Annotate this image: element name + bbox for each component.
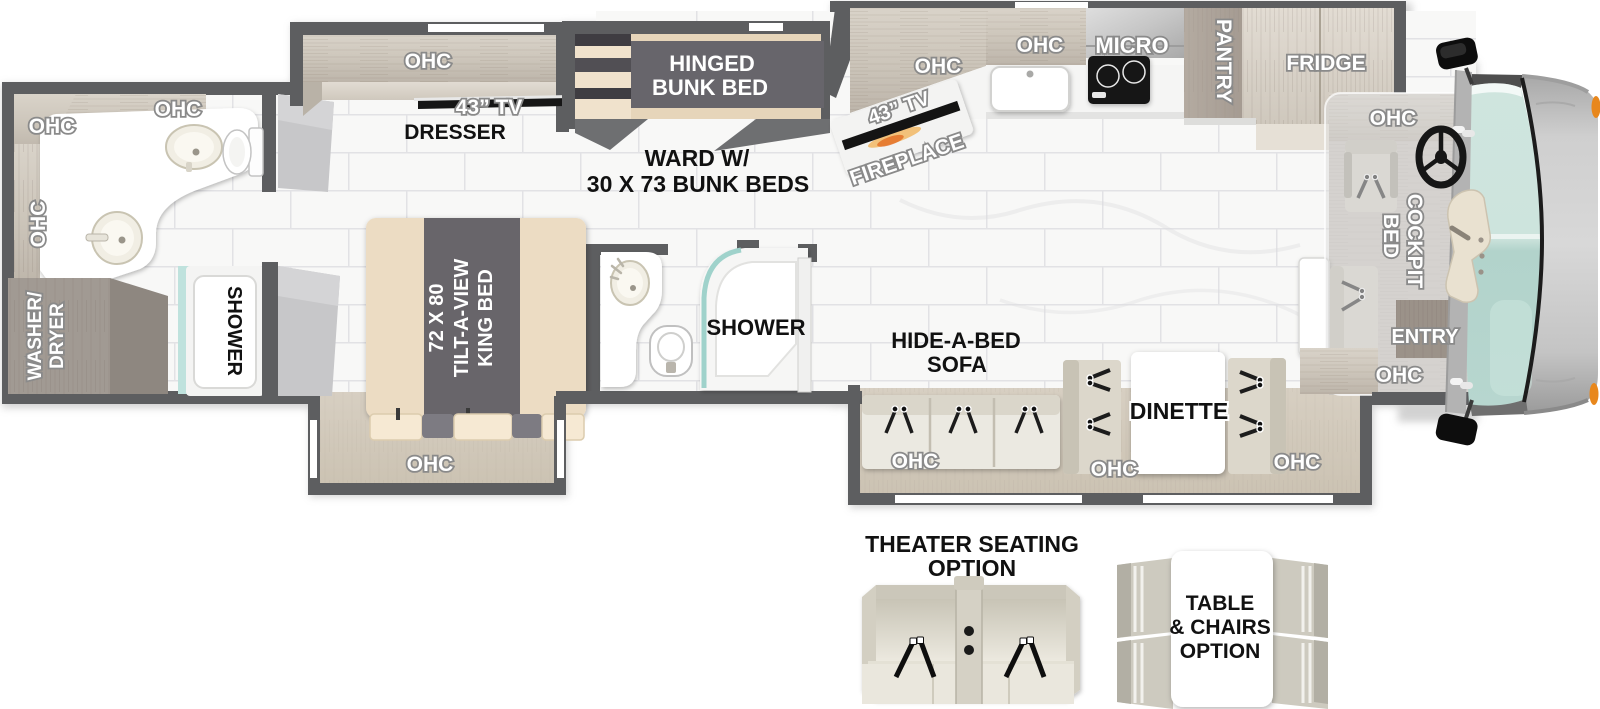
svg-text:72 X 80: 72 X 80 [426, 284, 448, 353]
svg-text:COCKPIT: COCKPIT [1403, 194, 1426, 289]
svg-text:SHOWER: SHOWER [223, 286, 245, 377]
svg-text:FRIDGE: FRIDGE [1286, 52, 1365, 75]
svg-text:ENTRY: ENTRY [1391, 326, 1459, 348]
svg-text:BED: BED [1379, 214, 1402, 258]
svg-text:OHC: OHC [1370, 107, 1417, 130]
svg-text:THEATER SEATING: THEATER SEATING [865, 531, 1079, 557]
svg-text:HIDE-A-BED: HIDE-A-BED [891, 328, 1021, 353]
svg-text:WASHER/: WASHER/ [25, 291, 46, 380]
svg-text:MICRO: MICRO [1095, 33, 1168, 58]
svg-text:OHC: OHC [892, 450, 939, 473]
svg-text:OHC: OHC [1376, 364, 1423, 387]
svg-text:PANTRY: PANTRY [1212, 19, 1235, 103]
svg-text:OHC: OHC [1091, 458, 1138, 481]
svg-text:43” TV: 43” TV [456, 96, 523, 119]
svg-text:TABLE: TABLE [1186, 592, 1254, 615]
svg-text:OPTION: OPTION [928, 555, 1016, 581]
svg-text:& CHAIRS: & CHAIRS [1169, 616, 1271, 639]
svg-text:OHC: OHC [29, 115, 76, 138]
svg-text:30 X 73 BUNK BEDS: 30 X 73 BUNK BEDS [587, 171, 809, 197]
svg-text:DINETTE: DINETTE [1130, 398, 1228, 424]
svg-text:OHC: OHC [27, 201, 50, 248]
svg-text:TILT-A-VIEW: TILT-A-VIEW [451, 259, 473, 378]
svg-text:OPTION: OPTION [1180, 640, 1261, 663]
svg-text:OHC: OHC [155, 98, 202, 121]
svg-text:OHC: OHC [1274, 451, 1321, 474]
svg-text:DRYER: DRYER [47, 303, 68, 369]
svg-text:HINGED: HINGED [669, 51, 755, 76]
svg-text:OHC: OHC [405, 50, 452, 73]
svg-text:DRESSER: DRESSER [404, 121, 506, 144]
svg-text:KING BED: KING BED [475, 269, 497, 367]
svg-text:OHC: OHC [407, 453, 454, 476]
svg-text:OHC: OHC [915, 55, 962, 78]
svg-text:SOFA: SOFA [927, 352, 987, 377]
svg-text:WARD W/: WARD W/ [645, 145, 750, 171]
svg-text:BUNK BED: BUNK BED [652, 75, 768, 100]
svg-text:OHC: OHC [1017, 34, 1064, 57]
svg-text:SHOWER: SHOWER [707, 315, 806, 340]
